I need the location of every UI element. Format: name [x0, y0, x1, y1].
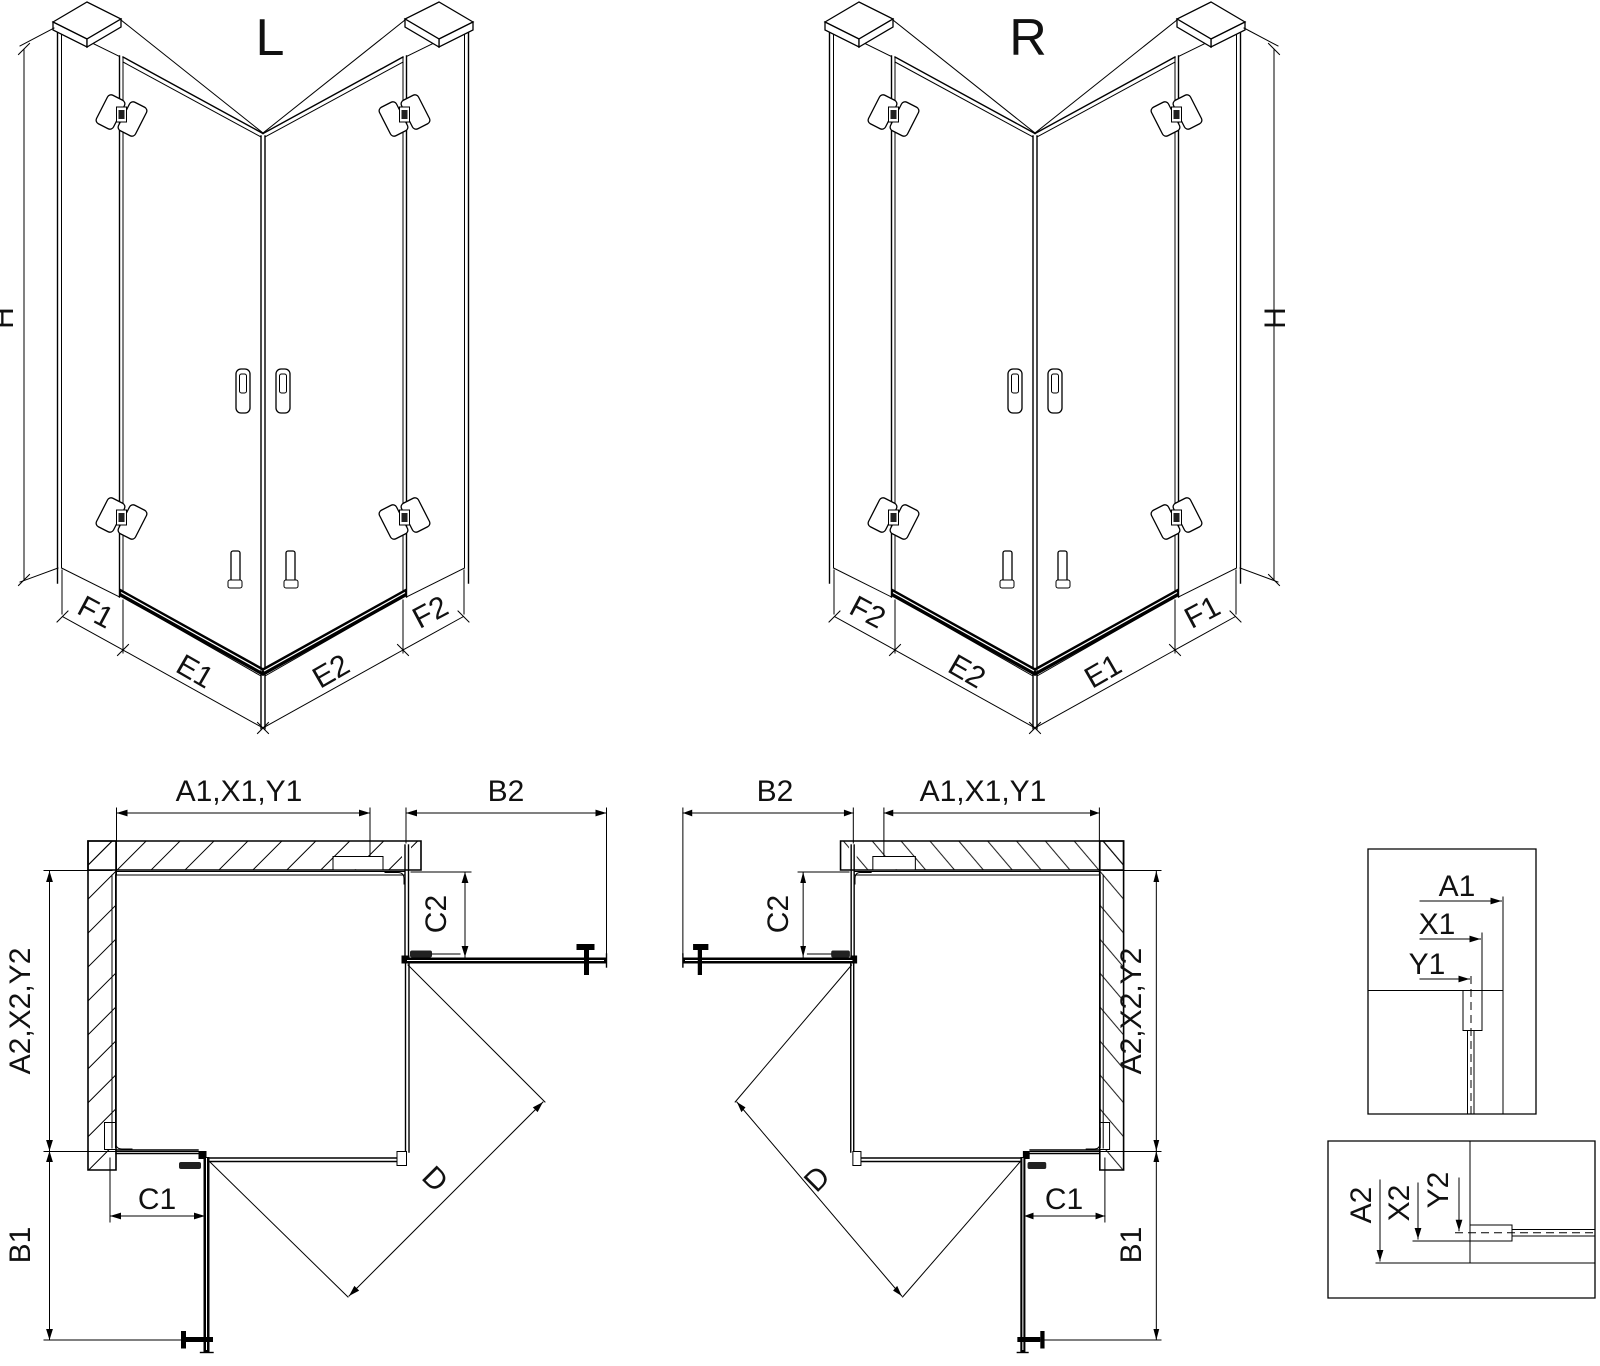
- height-dim-label-left: H: [0, 307, 20, 329]
- segment-label-f1-right: F1: [1179, 590, 1225, 636]
- iso-view-right: R H F2 E2 E1 F1: [825, 2, 1292, 734]
- view-title-right: R: [1009, 9, 1047, 67]
- detail-top-label-a1: A1: [1439, 870, 1476, 903]
- segment-label-f1-left: F1: [72, 590, 118, 636]
- shower-enclosure-diagram: L H F1 E1 E2 F2 R H F2 E2 E1 F1 A1,X1,Y1…: [0, 0, 1600, 1366]
- plan-left-width-label: A1,X1,Y1: [176, 775, 303, 808]
- plan-right-return1-label: C1: [1045, 1183, 1083, 1216]
- plan-right-door1-label: B1: [1115, 1227, 1148, 1264]
- view-title-left: L: [256, 9, 285, 67]
- detail-top-label-y1: Y1: [1409, 948, 1446, 981]
- detail-bottom-label-y2: Y2: [1422, 1172, 1455, 1209]
- plan-view-right: B2 A1,X1,Y1 C2 A2,X2,Y2 B1 C1 D: [683, 775, 1161, 1353]
- detail-top-label-x1: X1: [1419, 908, 1456, 941]
- height-dim-label-right: H: [1259, 307, 1292, 329]
- plan-right-door2-label: B2: [757, 775, 794, 808]
- segment-label-e1-right: E1: [1079, 648, 1127, 695]
- plan-view-left: A1,X1,Y1 B2 C2 A2,X2,Y2 B1 C1 D: [4, 775, 607, 1353]
- segment-label-f2-right: F2: [844, 590, 890, 636]
- plan-left-return2-label: C2: [420, 895, 453, 933]
- plan-left-depth-label: A2,X2,Y2: [4, 948, 37, 1075]
- detail-view-glass-offset-top: A1 X1 Y1: [1368, 849, 1536, 1114]
- segment-label-e2-right: E2: [943, 648, 991, 695]
- plan-right-depth-label: A2,X2,Y2: [1115, 948, 1148, 1075]
- segment-label-e1-left: E1: [171, 648, 219, 695]
- detail-bottom-label-x2: X2: [1383, 1185, 1416, 1222]
- technical-drawing-page: L H F1 E1 E2 F2 R H F2 E2 E1 F1 A1,X1,Y1…: [0, 0, 1600, 1366]
- plan-left-door2-label: B2: [488, 775, 525, 808]
- detail-view-glass-offset-bottom: A2 X2 Y2: [1328, 1141, 1595, 1298]
- plan-line-art-right: [683, 808, 1161, 1353]
- plan-line-art-left: [44, 808, 607, 1353]
- segment-label-f2-left: F2: [407, 590, 453, 636]
- segment-label-e2-left: E2: [307, 648, 355, 695]
- plan-right-diagonal-label: D: [798, 1160, 837, 1199]
- plan-left-door1-label: B1: [4, 1227, 37, 1264]
- plan-left-diagonal-label: D: [415, 1160, 454, 1199]
- plan-right-return2-label: C2: [762, 895, 795, 933]
- iso-view-left: L H F1 E1 E2 F2: [0, 2, 473, 734]
- plan-right-width-label: A1,X1,Y1: [920, 775, 1047, 808]
- plan-left-return1-label: C1: [138, 1183, 176, 1216]
- detail-bottom-label-a2: A2: [1345, 1187, 1378, 1224]
